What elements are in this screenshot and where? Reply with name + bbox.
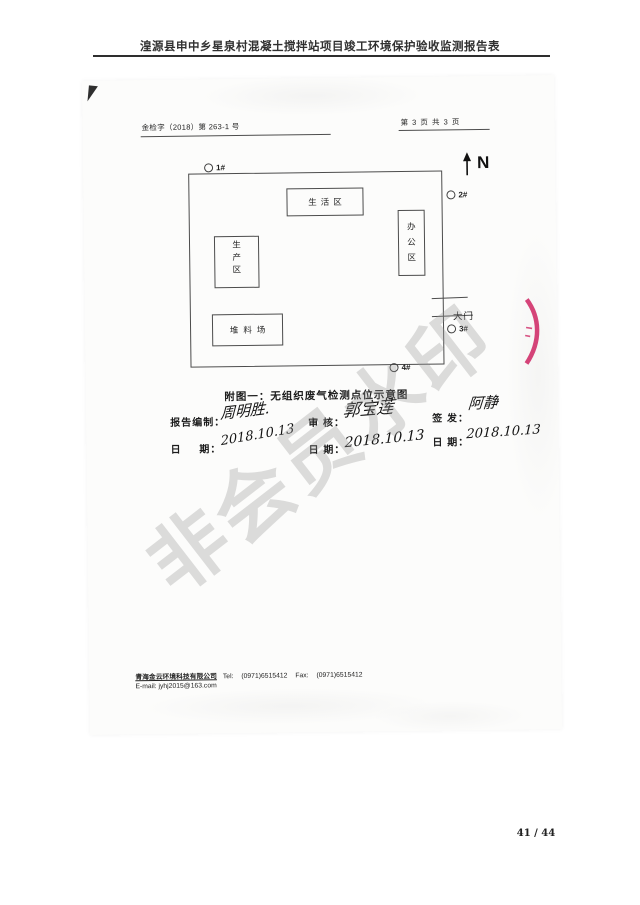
monitor-point-1: 1# (204, 163, 225, 172)
reviewed-date-label: 日 期： (308, 441, 345, 456)
monitor-point-label: 1# (216, 163, 225, 172)
monitor-point-4: 4# (389, 363, 410, 372)
ref-underline (141, 134, 331, 137)
scanned-page: 金检字（2018）第 263-1 号 第 3 页 共 3 页 生活区 办公区 生… (82, 75, 562, 735)
issued-date-handwritten: 2018.10.13 (466, 422, 541, 442)
monitor-point-circle-icon (389, 363, 398, 372)
lab-company-name: 青海金云环境科技有限公司 (135, 673, 217, 681)
monitor-point-label: 2# (458, 190, 467, 199)
reviewed-date-handwritten: 2018.10.13 (345, 427, 425, 451)
stockyard-area-box: 堆料场 (212, 313, 283, 346)
issued-date-label: 日 期： (432, 433, 469, 448)
page-corner-fold-mark (87, 85, 97, 102)
red-seal-stamp (521, 297, 548, 365)
page-info-underline (399, 129, 490, 131)
fax-label: Fax: (295, 672, 308, 679)
north-indicator: N (460, 152, 504, 179)
reviewed-by-signature: 郭宝莲 (342, 392, 395, 421)
monitor-point-circle-icon (446, 190, 455, 199)
page-of-pages: 第 3 页 共 3 页 (400, 116, 460, 128)
living-area-box: 生活区 (286, 187, 363, 216)
monitor-point-label: 3# (459, 324, 468, 333)
monitor-point-circle-icon (447, 324, 456, 333)
prepared-by-label: 报告编制： (170, 413, 225, 429)
prepared-by-signature: 周明胜. (220, 397, 270, 424)
report-ref-number: 金检字（2018）第 263-1 号 (142, 121, 240, 133)
production-area-box: 生产区 (214, 236, 260, 289)
pdf-page-number: 41 / 44 (505, 828, 567, 839)
north-letter: N (477, 153, 490, 173)
prepared-date-handwritten: 2018.10.13 (220, 421, 294, 449)
report-page: 湟源县申中乡星泉村混凝土搅拌站项目竣工环境保护验收监测报告表 金检字（2018）… (0, 0, 640, 905)
monitor-point-2: 2# (446, 190, 467, 199)
monitor-point-label: 4# (401, 363, 410, 372)
monitor-point-3: 3# (447, 324, 468, 333)
lab-contact-line: 青海金云环境科技有限公司Tel: (0971)6515412 Fax: (097… (135, 669, 362, 682)
tel-label: Tel: (223, 673, 234, 680)
lab-email-line: E-mail: jyhj2015@163.com (135, 682, 216, 690)
tel-value: (0971)6515412 (241, 672, 287, 680)
gate-mark-top (432, 297, 468, 299)
north-arrow-icon (460, 152, 474, 176)
document-title: 湟源县申中乡星泉村混凝土搅拌站项目竣工环境保护验收监测报告表 (0, 38, 640, 54)
issued-by-label: 签 发： (432, 409, 469, 424)
reviewed-by-label: 审 核： (308, 414, 345, 429)
monitor-point-circle-icon (204, 163, 213, 172)
title-divider (93, 55, 550, 57)
prepared-date-label: 日 期： (170, 440, 221, 456)
issued-by-signature: 阿静 (467, 391, 499, 414)
office-area-box: 办公区 (398, 210, 426, 276)
gate-label: 大门 (453, 308, 474, 322)
fax-value: (0971)6515412 (316, 672, 362, 680)
